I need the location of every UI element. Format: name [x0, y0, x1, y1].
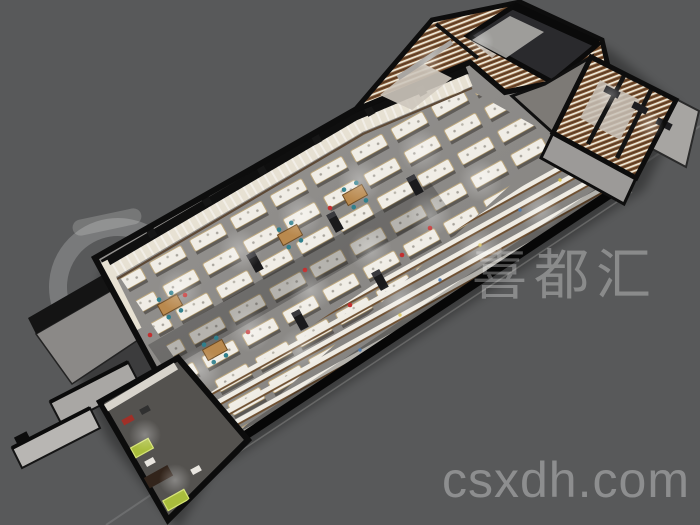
- watermark-brand-text: 喜都汇: [472, 230, 658, 310]
- store-render-image: 喜都汇 csxdh.com: [0, 0, 700, 525]
- watermark-site-text: csxdh.com: [442, 451, 690, 509]
